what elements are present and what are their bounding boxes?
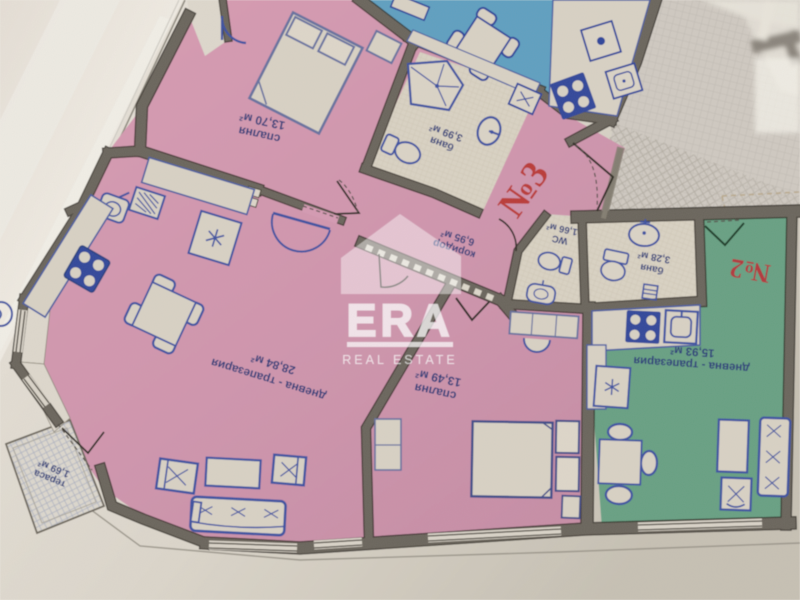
svg-text:REAL ESTATE: REAL ESTATE	[342, 353, 457, 367]
svg-text:ERA: ERA	[346, 295, 453, 346]
